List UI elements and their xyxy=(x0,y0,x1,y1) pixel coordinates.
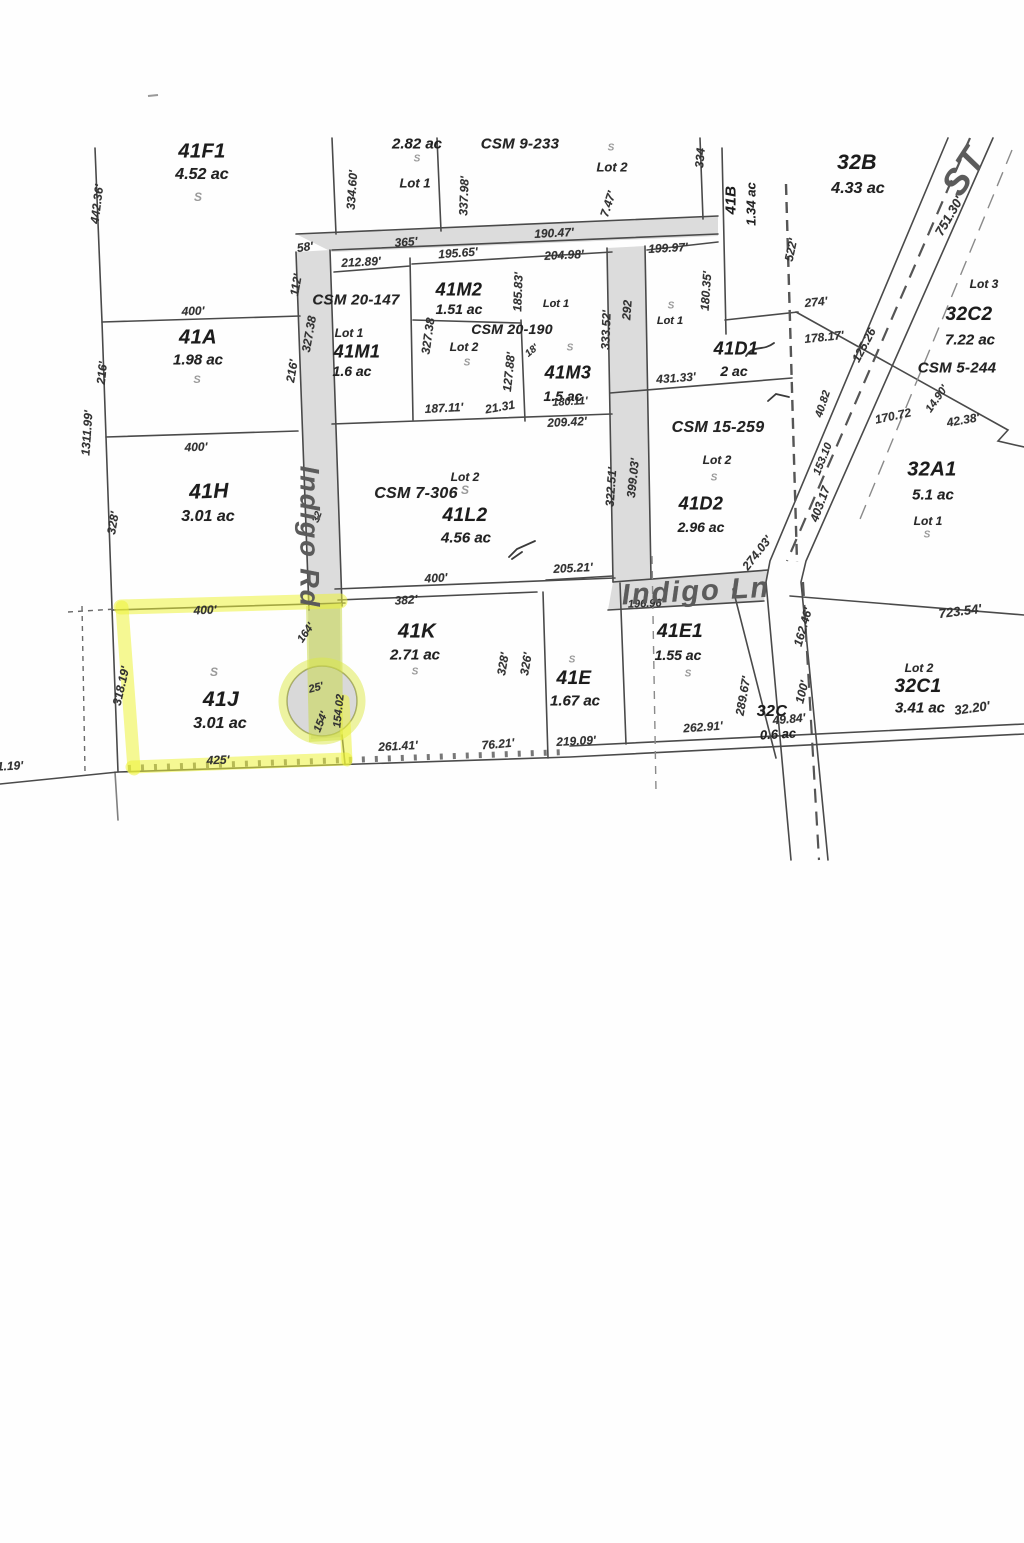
parcel-41e: 41E xyxy=(556,668,591,690)
dim-58: 58' xyxy=(296,239,314,255)
survey-mark-41e: S xyxy=(569,655,576,666)
dim-262-91: 262.91' xyxy=(683,719,723,736)
survey-mark-csm9233-lot1: S xyxy=(414,154,421,165)
parcel-32c-area: 0.6 ac xyxy=(760,726,797,743)
parcel-41k: 41K xyxy=(398,621,436,644)
parcel-41d2: 41D2 xyxy=(679,494,724,515)
parcel-41m3: 41M3 xyxy=(545,363,592,384)
parcel-32b-area: 4.33 ac xyxy=(831,180,884,198)
survey-mark-csm9233-lot2: S xyxy=(608,143,615,154)
plat-map: 41F14.52 ac2.82 ac41A1.98 ac41H3.01 ac41… xyxy=(0,0,1024,1543)
line-41k-41e-divider xyxy=(543,592,548,758)
checkmark-41d1-south xyxy=(768,394,789,401)
parcel-41b: 41B xyxy=(723,186,740,215)
parcel-32c1-area: 3.41 ac xyxy=(895,700,945,717)
lot-3-32c2: Lot 3 xyxy=(970,277,999,291)
line-41h-north xyxy=(106,431,298,437)
parcel-41h: 41H xyxy=(189,479,230,504)
dim-204-98: 204.98' xyxy=(544,247,584,263)
parcel-32c1: 32C1 xyxy=(894,676,941,698)
parcel-41d2-area: 2.96 ac xyxy=(678,519,725,535)
dim-199-97: 199.97' xyxy=(648,240,688,256)
line-41k-north-2 xyxy=(338,592,537,600)
dim-76-21: 76.21' xyxy=(481,736,515,753)
dim-195-65: 195.65' xyxy=(438,245,478,262)
parcel-32b: 32B xyxy=(837,151,877,175)
dim-205-21: 205.21' xyxy=(553,560,593,576)
dim-400-41k: 400' xyxy=(424,570,448,585)
parcel-32a1: 32A1 xyxy=(907,459,956,482)
dim-382: 382' xyxy=(394,592,418,608)
dim-334: 334 xyxy=(692,147,708,168)
boundary-stub-south xyxy=(115,772,118,820)
line-41b-west xyxy=(722,148,726,334)
parcel-csm9233-area: 2.82 ac xyxy=(392,136,442,153)
lot-1-csm9233: Lot 1 xyxy=(399,176,430,191)
lot-2-csm20190: Lot 2 xyxy=(450,340,479,354)
road-label-indigo-rd: Indigo Rd xyxy=(294,466,325,608)
dim-400-41a: 400' xyxy=(181,304,204,319)
survey-mark-41l2: S xyxy=(461,483,469,497)
dim-187-11: 187.11' xyxy=(424,400,463,416)
line-41k-north-1 xyxy=(335,578,615,589)
dim-1-19: 1.19' xyxy=(0,758,23,773)
dim-180-11: 180.11' xyxy=(552,395,588,409)
lot-2-csm9233: Lot 2 xyxy=(596,160,627,175)
survey-mark-41d2: S xyxy=(711,473,718,484)
lot-2-41d2: Lot 2 xyxy=(703,453,732,467)
highlight-41j-south xyxy=(132,759,346,767)
parcel-41j-area: 3.01 ac xyxy=(193,715,246,733)
checkmark-41l2 xyxy=(509,541,535,559)
boundary-south-road-upper xyxy=(570,724,1024,746)
boundary-lines xyxy=(0,138,1024,860)
plat-map-page: 41F14.52 ac2.82 ac41A1.98 ac41H3.01 ac41… xyxy=(0,0,1024,1543)
lot-1-41m1: Lot 1 xyxy=(335,326,364,340)
parcel-41m2-area: 1.51 ac xyxy=(436,301,483,317)
csm-5-244: CSM 5-244 xyxy=(918,360,997,377)
csm-20-147: CSM 20-147 xyxy=(312,292,399,309)
parcel-41d1-area: 2 ac xyxy=(720,363,747,379)
dim-190-47: 190.47' xyxy=(534,225,574,241)
line-41f1-east xyxy=(332,138,336,234)
parcel-41e-area: 1.67 ac xyxy=(550,693,600,710)
parcel-41f1: 41F1 xyxy=(178,141,225,164)
lot-1-41d1: Lot 1 xyxy=(657,315,683,327)
lot-2-32c1: Lot 2 xyxy=(905,661,934,675)
dim-212-89: 212.89' xyxy=(341,254,381,270)
lot-2-csm7306: Lot 2 xyxy=(451,470,480,484)
dim-322-51: 322.51' xyxy=(603,467,620,507)
parcel-32c2: 32C2 xyxy=(945,304,992,326)
survey-mark-41k: S xyxy=(412,667,419,678)
survey-mark-41d1: S xyxy=(668,301,675,312)
dim-261-41: 261.41' xyxy=(378,738,418,754)
parcel-41l2: 41L2 xyxy=(443,505,488,527)
dim-400-41h: 400' xyxy=(184,440,207,455)
parcel-41b-area: 1.34 ac xyxy=(744,182,759,225)
dim-219-09: 219.09' xyxy=(556,733,596,749)
dim-334-60: 334.60' xyxy=(344,170,361,210)
dim-185-83: 185.83' xyxy=(510,272,525,312)
dashed-lines xyxy=(68,95,1012,860)
parcel-41e1: 41E1 xyxy=(657,621,703,643)
lot-1-41m3: Lot 1 xyxy=(543,298,569,310)
dashed-west-of-41j xyxy=(82,606,85,772)
survey-mark-32a1: S xyxy=(924,530,931,541)
line-41m1-east xyxy=(410,258,413,420)
parcel-32a1-area: 5.1 ac xyxy=(912,487,954,504)
survey-mark-41m3: S xyxy=(567,343,574,354)
parcel-41m1: 41M1 xyxy=(334,342,381,363)
highlight-41j xyxy=(121,601,361,769)
survey-mark-41a: S xyxy=(193,374,200,386)
parcel-41k-area: 2.71 ac xyxy=(390,647,440,664)
lot-1-32a1: Lot 1 xyxy=(914,514,943,528)
parcel-41m2: 41M2 xyxy=(436,280,483,301)
parcel-boundaries-svg xyxy=(0,0,1024,1543)
parcel-41d1: 41D1 xyxy=(714,339,759,360)
parcel-32c2-area: 7.22 ac xyxy=(945,332,995,349)
parcel-41m1-area: 1.6 ac xyxy=(333,363,372,379)
scan-artifact-dash xyxy=(148,95,158,96)
parcel-41f1-area: 4.52 ac xyxy=(175,166,228,184)
dim-216-left: 216' xyxy=(94,361,110,385)
dim-400-41j: 400' xyxy=(193,603,216,618)
parcel-41l2-area: 4.56 ac xyxy=(441,530,491,547)
survey-mark-41m2: S xyxy=(464,358,471,369)
dim-431-33: 431.33' xyxy=(656,370,696,387)
parcel-41e1-area: 1.55 ac xyxy=(655,647,702,663)
dim-209-42: 209.42' xyxy=(547,414,587,430)
csm-20-190: CSM 20-190 xyxy=(471,321,553,337)
highway-east-edge xyxy=(801,138,993,860)
survey-mark-41e1: S xyxy=(685,669,692,680)
dim-292: 292 xyxy=(619,300,634,321)
parcel-41a: 41A xyxy=(179,327,217,350)
dashed-stub-41j-nw xyxy=(68,609,116,612)
survey-mark-41j: S xyxy=(210,665,218,679)
parcel-41j: 41J xyxy=(203,688,239,712)
line-41b-south xyxy=(725,312,798,320)
dim-180-35: 180.35' xyxy=(698,271,715,311)
dim-333-52: 333.52' xyxy=(598,310,613,350)
parcel-41h-area: 3.01 ac xyxy=(181,508,234,526)
csm-9-233: CSM 9-233 xyxy=(481,136,560,153)
dim-49-84: 49.84' xyxy=(772,711,806,728)
line-32a1-south xyxy=(790,596,1024,615)
csm-15-259: CSM 15-259 xyxy=(672,419,765,437)
dim-274: 274' xyxy=(804,294,828,310)
road-east-corridor xyxy=(607,246,651,582)
dim-425: 425' xyxy=(206,753,229,768)
survey-mark-41f1: S xyxy=(194,190,202,204)
dim-337-98: 337.98' xyxy=(456,176,471,216)
dim-365: 365' xyxy=(394,234,418,250)
csm-7-306: CSM 7-306 xyxy=(374,485,458,503)
parcel-41a-area: 1.98 ac xyxy=(173,352,223,369)
